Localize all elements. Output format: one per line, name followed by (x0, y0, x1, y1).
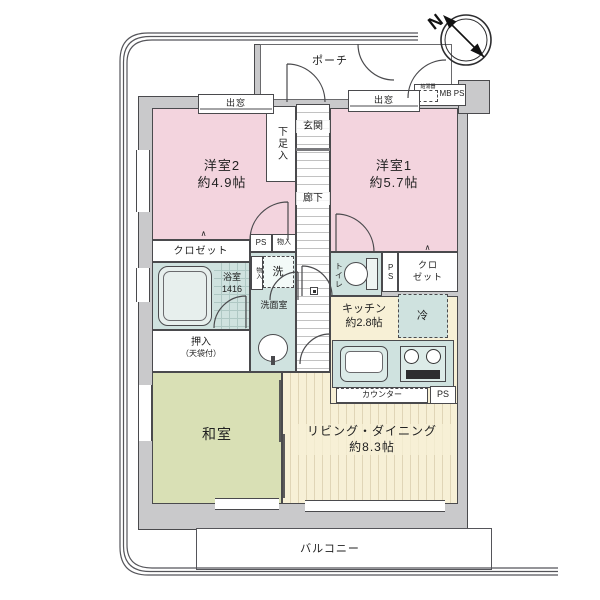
storage-top-box: 物入 (272, 234, 296, 252)
fold-mark-closet-right: ∧ (420, 243, 436, 253)
western2-size: 約4.9帖 (152, 175, 292, 192)
ps-top-box: PS (250, 234, 272, 252)
kitchen-sink-inner (345, 351, 383, 373)
washbasin-faucet (271, 356, 275, 365)
washroom-label: 洗面室 (252, 300, 296, 312)
bath-label: 浴室 1416 (212, 272, 252, 295)
ps-low-label: PS (437, 389, 449, 401)
storage-side-label: 物入 (253, 267, 261, 279)
storage-top-label: 物入 (277, 238, 291, 247)
entrance-step (296, 148, 330, 151)
switch-dot (313, 290, 316, 293)
western1-name: 洋室1 (330, 158, 458, 175)
fridge-box: 冷 (398, 294, 448, 338)
closet-right-line1: クロ (418, 260, 438, 272)
bay-window-right: 出窓 (348, 90, 420, 112)
western2-label: 洋室2 約4.9帖 (152, 158, 292, 192)
kitchen-sink (340, 346, 388, 382)
counter-label-box: カウンター (336, 388, 428, 403)
bay-left-label: 出窓 (226, 98, 246, 110)
window-bath-left (136, 268, 150, 302)
window-japanese-left (138, 385, 152, 441)
switch-box (310, 287, 318, 295)
stove-burner-left (404, 349, 419, 364)
porch-label: ポーチ (295, 54, 365, 68)
closet-left-label: クロゼット (174, 245, 229, 258)
oshiire-name: 押入 (156, 336, 246, 349)
hallway-label: 廊下 (296, 192, 330, 205)
water-heater-box (418, 90, 438, 102)
bath-size: 1416 (212, 284, 252, 296)
storage-side-box: 物入 (251, 256, 263, 290)
mbps-label: MB PS (438, 89, 466, 99)
ps-top-label: PS (256, 238, 267, 248)
fridge-label: 冷 (417, 309, 429, 323)
hallway-strip (296, 104, 330, 372)
entrance-label: 玄関 (296, 120, 330, 133)
ps-low-box: PS (430, 386, 456, 404)
bathtub (158, 266, 212, 326)
fold-mark-closet-left: ∧ (196, 229, 212, 239)
closet-right: クロ ゼット (398, 252, 458, 292)
japanese-room-label: 和室 (182, 425, 252, 443)
stove-burner-right (426, 349, 441, 364)
western1-label: 洋室1 約5.7帖 (330, 158, 458, 192)
bay-window-left: 出窓 (198, 94, 274, 114)
western1-size: 約5.7帖 (330, 175, 458, 192)
bath-name: 浴室 (212, 272, 252, 284)
kitchen-label: キッチン 約2.8帖 (332, 302, 396, 331)
window-western2-left (136, 150, 150, 212)
compass-needle-head (443, 15, 457, 29)
oshiire-label: 押入 （天袋付） (156, 336, 246, 359)
compass-needle (447, 20, 484, 57)
window-japanese-balcony (215, 498, 279, 510)
living-size: 約8.3帖 (292, 440, 452, 456)
compass-needle-tail (470, 44, 484, 58)
stove-base (406, 370, 440, 379)
toilet-label: トイレ (333, 257, 343, 293)
bay-right-label: 出窓 (374, 95, 394, 107)
ps-mid-box: PS (382, 252, 398, 292)
closet-left: クロゼット (152, 240, 250, 262)
counter-label: カウンター (362, 390, 402, 400)
kitchen-size: 約2.8帖 (332, 316, 396, 330)
compass-north-label: N (424, 10, 447, 34)
closet-right-line2: ゼット (413, 272, 443, 284)
washer-label: 洗 (273, 265, 285, 279)
oshiire-note: （天袋付） (156, 349, 246, 359)
living-name: リビング・ダイニング (292, 424, 452, 440)
western2-name: 洋室2 (152, 158, 292, 175)
shoe-box-label: 下足入 (275, 126, 288, 162)
floor-plan: ポーチ 給湯器 MB PS 下足入 出窓 出窓 PS 物入 クロゼット 浴室 1… (0, 0, 600, 600)
washer-box: 洗 (263, 256, 294, 288)
window-living-balcony (305, 500, 445, 512)
ps-mid-label: PS (385, 263, 395, 281)
balcony-label: バルコニー (250, 542, 410, 556)
toilet-bowl (344, 262, 368, 286)
bathtub-inner (163, 271, 207, 321)
living-label: リビング・ダイニング 約8.3帖 (292, 424, 452, 455)
kitchen-name: キッチン (332, 302, 396, 316)
